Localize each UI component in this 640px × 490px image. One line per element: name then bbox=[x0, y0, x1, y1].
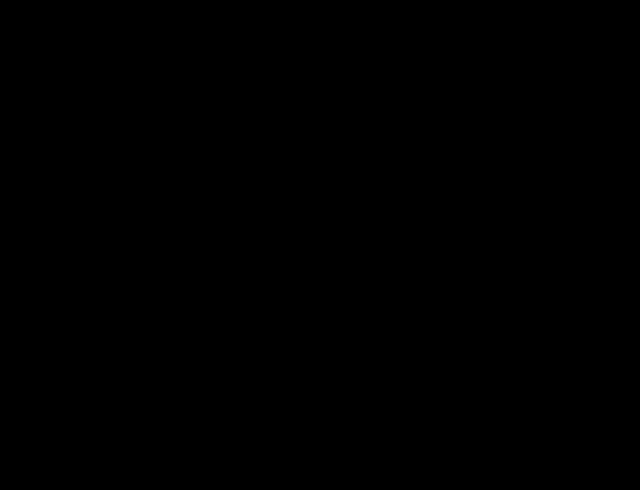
aerial-photo-frame bbox=[0, 0, 640, 490]
aerial-photo bbox=[0, 0, 640, 490]
